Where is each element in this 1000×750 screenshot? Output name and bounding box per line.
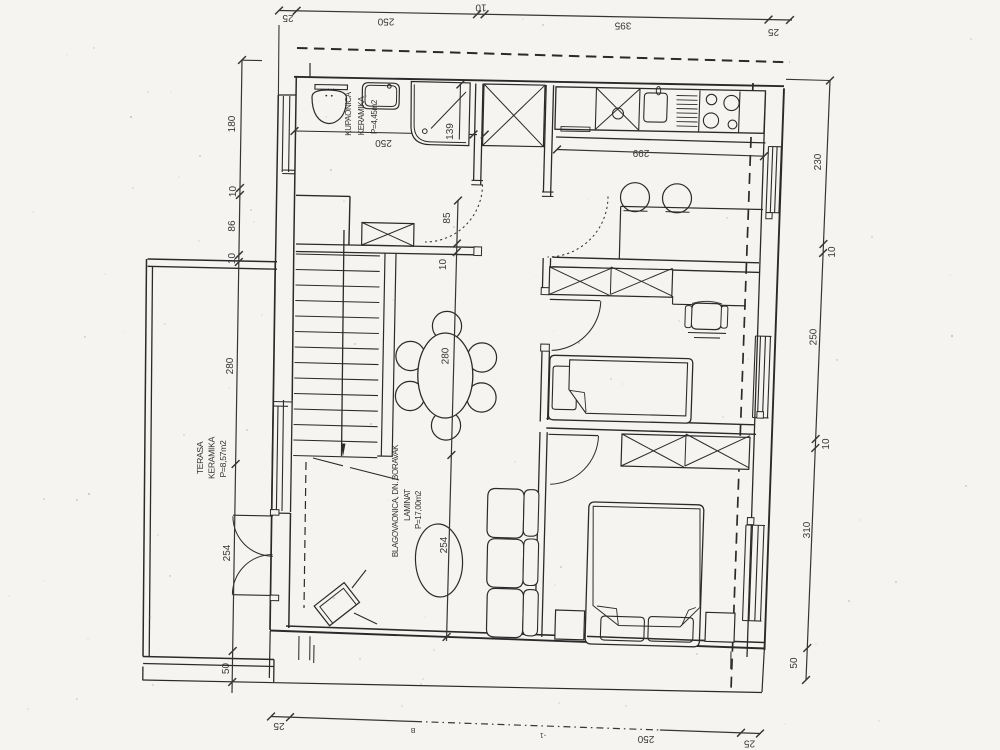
svg-text:25: 25 (768, 26, 780, 37)
svg-text:50: 50 (789, 657, 800, 669)
svg-text:BLAGOVAONICA, DN. BORAVAK: BLAGOVAONICA, DN. BORAVAK (391, 444, 400, 557)
svg-text:86: 86 (227, 220, 238, 232)
svg-text:-1: -1 (540, 731, 546, 738)
svg-text:TERASA: TERASA (195, 441, 205, 474)
svg-text:280: 280 (225, 357, 236, 374)
svg-text:139: 139 (445, 123, 456, 140)
svg-text:25: 25 (273, 720, 285, 731)
svg-text:250: 250 (809, 328, 820, 345)
svg-text:10: 10 (475, 2, 487, 13)
svg-text:25: 25 (744, 738, 756, 749)
svg-text:10: 10 (228, 186, 239, 198)
svg-text:254: 254 (222, 544, 233, 561)
svg-text:85: 85 (442, 212, 453, 224)
svg-text:254: 254 (439, 536, 450, 553)
svg-text:10: 10 (827, 246, 838, 258)
svg-text:280: 280 (441, 347, 452, 364)
svg-text:P=17,00m2: P=17,00m2 (414, 490, 423, 529)
svg-text:KERAMIKA: KERAMIKA (357, 96, 366, 136)
svg-text:230: 230 (813, 153, 824, 170)
svg-text:10: 10 (227, 253, 238, 265)
svg-text:50: 50 (221, 663, 232, 675)
svg-text:P=8,57m2: P=8,57m2 (218, 440, 228, 478)
svg-text:180: 180 (227, 115, 238, 132)
svg-text:250: 250 (375, 137, 392, 148)
svg-text:LAMINAT: LAMINAT (403, 489, 412, 521)
svg-text:299: 299 (632, 147, 649, 158)
svg-text:KERAMIKA: KERAMIKA (207, 436, 217, 479)
svg-text:395: 395 (614, 20, 631, 31)
svg-text:10: 10 (821, 438, 832, 450)
svg-text:310: 310 (802, 521, 813, 538)
svg-text:25: 25 (282, 12, 294, 23)
svg-text:P=4,45m2: P=4,45m2 (370, 99, 379, 134)
svg-text:10: 10 (438, 259, 449, 271)
svg-text:B: B (410, 726, 415, 733)
svg-text:KUPAONICA: KUPAONICA (344, 91, 353, 135)
svg-text:250: 250 (637, 733, 654, 744)
svg-text:250: 250 (377, 16, 394, 27)
